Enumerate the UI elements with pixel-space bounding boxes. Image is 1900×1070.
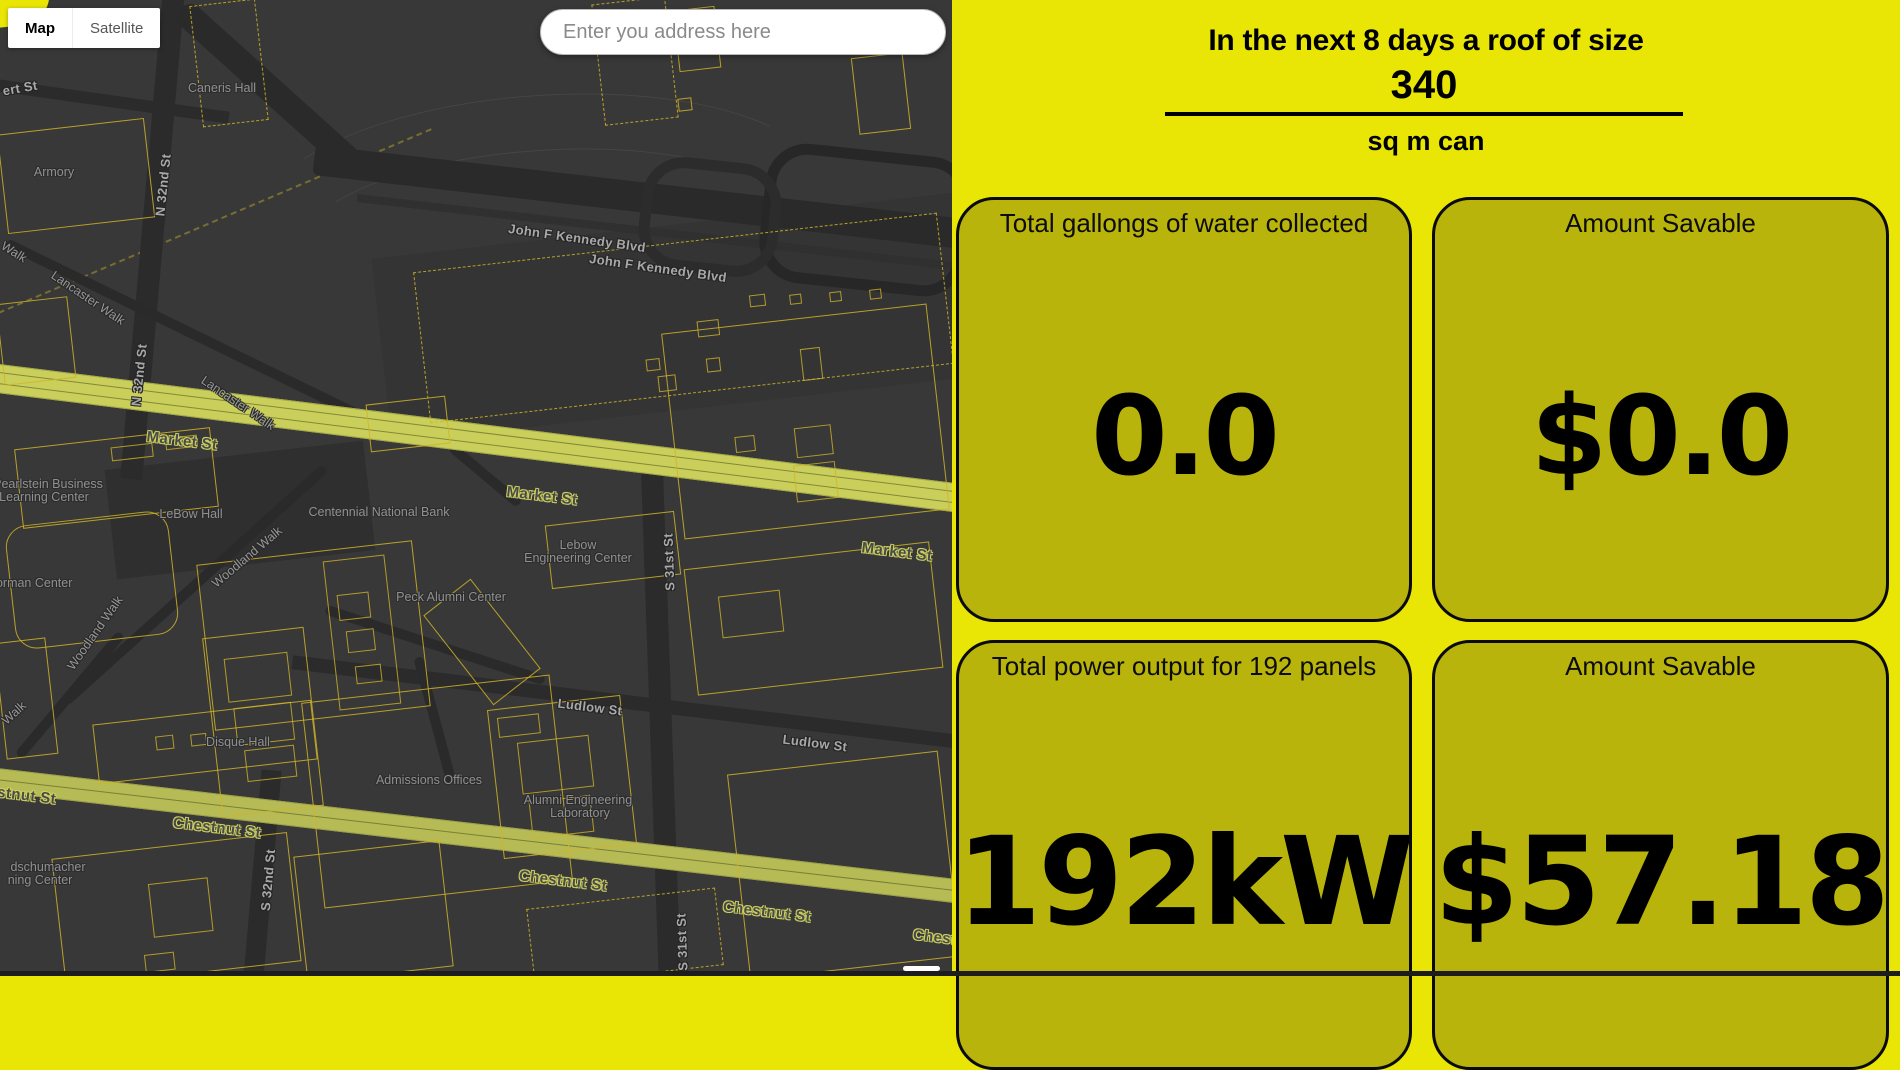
water-collected-card: Total gallongs of water collected 0.0 bbox=[956, 197, 1412, 622]
place-label: Pearlstein Business bbox=[0, 477, 103, 491]
walk-label: Lancaster Walk bbox=[199, 373, 278, 433]
major-label: Chestnut St bbox=[722, 898, 812, 926]
satellite-view-button[interactable]: Satellite bbox=[72, 8, 160, 48]
walk-label: Lancaster Walk bbox=[49, 268, 128, 328]
power-savings-value: $57.18 bbox=[1434, 821, 1887, 943]
panel-header-line1: In the next 8 days a roof of size bbox=[952, 24, 1900, 58]
walk-label: Walk bbox=[0, 699, 29, 728]
card-value-wrap: $0.0 bbox=[1435, 239, 1886, 619]
card-title: Amount Savable bbox=[1435, 651, 1886, 682]
place-label: Armory bbox=[34, 165, 74, 179]
map-type-control: Map Satellite bbox=[8, 8, 160, 48]
place-label: dschumacher bbox=[10, 860, 85, 874]
card-title: Total power output for 192 panels bbox=[959, 651, 1409, 682]
water-savings-value: $0.0 bbox=[1531, 381, 1790, 491]
card-value-wrap: 0.0 bbox=[959, 239, 1409, 619]
card-title: Total gallongs of water collected bbox=[959, 208, 1409, 239]
bottom-bar bbox=[0, 971, 1900, 976]
major-label: Market St bbox=[861, 539, 934, 565]
card-title: Amount Savable bbox=[1435, 208, 1886, 239]
walk-label: Woodland Walk bbox=[64, 593, 125, 672]
roof-size-input[interactable] bbox=[1165, 58, 1683, 112]
street-label: S 32nd St bbox=[258, 848, 278, 911]
place-label: Peck Alumni Center bbox=[396, 590, 506, 604]
card-value-wrap: $57.18 bbox=[1435, 682, 1886, 1067]
results-panel: In the next 8 days a roof of size sq m c… bbox=[952, 0, 1900, 976]
place-label: Caneris Hall bbox=[188, 81, 256, 95]
map-canvas[interactable]: ert StCaneris HallArmoryN 32nd StJohn F … bbox=[0, 0, 952, 976]
street-label: N 32nd St bbox=[128, 343, 149, 407]
panel-header-line2: sq m can bbox=[952, 126, 1900, 157]
power-savings-card: Amount Savable $57.18 bbox=[1432, 640, 1889, 1070]
major-label: Chestnut St bbox=[912, 926, 952, 954]
major-label: Chestnut St bbox=[0, 780, 57, 808]
major-label: Market St bbox=[506, 483, 579, 509]
street-label: S 31st St bbox=[660, 533, 677, 591]
street-label: Ludlow St bbox=[782, 732, 848, 755]
map-labels-layer: ert StCaneris HallArmoryN 32nd StJohn F … bbox=[0, 0, 952, 976]
place-label: Lebow bbox=[560, 538, 597, 552]
map-white-dash bbox=[903, 966, 940, 971]
street-label: Ludlow St bbox=[557, 696, 623, 719]
roof-size-field bbox=[1165, 58, 1683, 116]
major-label: Market St bbox=[146, 428, 219, 454]
place-label: Alumni Engineering bbox=[524, 793, 632, 807]
address-search-input[interactable] bbox=[540, 9, 946, 55]
major-label: Chestnut St bbox=[518, 867, 608, 895]
street-label: S 31st St bbox=[673, 913, 690, 971]
walk-label: Walk bbox=[0, 239, 29, 265]
street-label: ert St bbox=[1, 78, 38, 99]
place-label: Admissions Offices bbox=[376, 773, 482, 787]
walk-label: Woodland Walk bbox=[209, 524, 285, 591]
place-label: Engineering Center bbox=[524, 551, 632, 565]
water-collected-value: 0.0 bbox=[1091, 381, 1277, 491]
app-root: { "page": {"width": 1900, "height": 976}… bbox=[0, 0, 1900, 976]
place-label: LeBow Hall bbox=[159, 507, 222, 521]
major-label: Chestnut St bbox=[172, 814, 262, 842]
card-value-wrap: 192kW bbox=[959, 682, 1409, 1067]
street-label: John F Kennedy Blvd bbox=[507, 221, 646, 255]
place-label: Disque Hall bbox=[206, 735, 270, 749]
street-label: John F Kennedy Blvd bbox=[588, 251, 727, 285]
place-label: Centennial National Bank bbox=[308, 505, 449, 519]
power-output-card: Total power output for 192 panels 192kW bbox=[956, 640, 1412, 1070]
street-label: N 32nd St bbox=[152, 153, 173, 217]
place-label: Korman Center bbox=[0, 576, 72, 590]
map-view-button[interactable]: Map bbox=[8, 8, 72, 48]
water-savings-card: Amount Savable $0.0 bbox=[1432, 197, 1889, 622]
stat-cards-grid: Total gallongs of water collected 0.0 Am… bbox=[956, 197, 1889, 1070]
place-label: Laboratory bbox=[550, 806, 610, 820]
power-output-value: 192kW bbox=[956, 821, 1411, 943]
place-label: ning Center bbox=[8, 873, 73, 887]
place-label: Learning Center bbox=[0, 490, 89, 504]
